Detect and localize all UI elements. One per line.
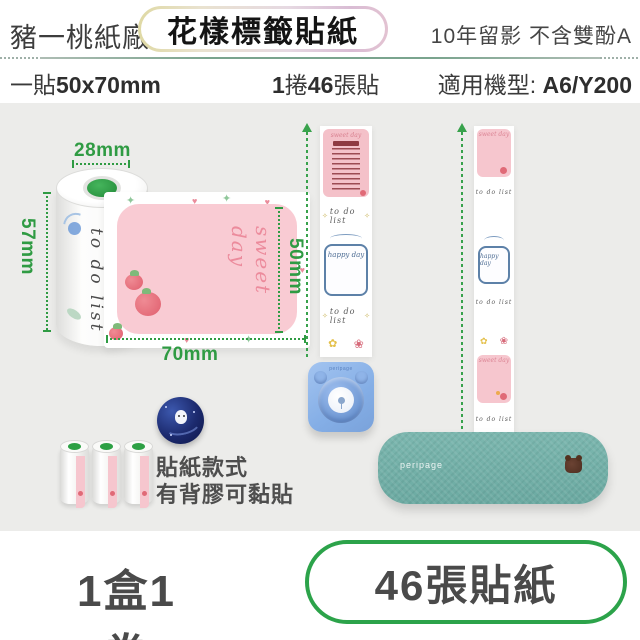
- a6-printer-teal: peripage: [378, 432, 608, 504]
- mini-printer-blue: peripage: [308, 362, 374, 432]
- strip-label-happy: happy day: [474, 234, 514, 290]
- mini-roll-pink-stripe: [76, 456, 85, 508]
- product-image: 豬一桃紙廠 花樣標籤貼紙 10年留影 不含雙酚A 一貼50x70mm 1捲46張…: [0, 0, 640, 640]
- divider-dots-right: [600, 57, 640, 59]
- spec-count-u1: 捲: [285, 72, 308, 98]
- divider-dots-left: [0, 57, 40, 59]
- printed-label-card: sweet day: [323, 129, 369, 197]
- note-line-2: 有背膠可黏貼: [156, 477, 294, 509]
- pack-quantity-text: 1盒1卷: [64, 555, 189, 640]
- strip-label-todo: to do list: [474, 290, 514, 314]
- sticker-label-text: sweet day: [227, 226, 275, 342]
- label-strip-middle: sweet day ✧ to do list ✧ happy day ✧ to …: [320, 126, 372, 357]
- sweet-label-card: sweet day: [477, 129, 511, 177]
- dimension-roll-height: 57mm: [16, 218, 38, 308]
- mini-roll-core: [100, 443, 113, 450]
- spec-size-prefix: 一貼: [10, 72, 56, 98]
- todo-label-text: to do list: [476, 189, 513, 196]
- mascot-logo-badge: [157, 397, 204, 444]
- dimension-label-height-line: [278, 207, 280, 333]
- brand-text: 豬一桃紙廠: [10, 16, 150, 55]
- bear-ear-decoration: [355, 371, 368, 384]
- happy-label-text: happy day: [328, 251, 364, 294]
- happy-label-frame: happy day: [324, 244, 368, 296]
- flower-decoration: ✿: [328, 337, 337, 350]
- balloon-icon: [338, 397, 345, 404]
- label-strip-right: sweet day to do list happy day to do lis…: [474, 126, 514, 433]
- printed-title-bar: [333, 141, 359, 146]
- flower-decoration: ✿: [480, 336, 488, 347]
- dimension-core-width-line: [72, 163, 130, 165]
- spec-size: 一貼50x70mm: [10, 66, 161, 100]
- mini-roll: [92, 440, 121, 504]
- dimension-roll-height-line: [46, 192, 48, 332]
- berry-dot-decoration: [78, 491, 83, 496]
- printer-brand-text: peripage: [400, 460, 443, 470]
- mini-roll-pink-stripe: [140, 456, 149, 508]
- star-dot: [170, 434, 172, 436]
- berry-dot-decoration: [500, 393, 507, 400]
- spec-row: 一貼50x70mm 1捲46張貼 適用機型: A6/Y200: [0, 66, 640, 98]
- sticker-count-text: 46張貼紙: [375, 552, 558, 613]
- certification-text: 10年留影 不含雙酚A: [431, 20, 632, 50]
- printer-ring: [318, 377, 364, 423]
- spec-model: 適用機型: A6/Y200: [438, 66, 632, 100]
- strip-label-flowers: ✿ ❀: [474, 330, 514, 352]
- printed-label-title: sweet day: [327, 132, 365, 139]
- strip-label-todo: ✧ to do list ✧: [320, 200, 372, 232]
- mini-roll-pink-stripe: [108, 456, 117, 508]
- berry-dot-decoration: [500, 167, 507, 174]
- spec-model-value: A6/Y200: [542, 72, 632, 98]
- bear-logo-icon: [565, 458, 582, 473]
- mini-roll: [124, 440, 153, 504]
- dimension-label-width-line: [106, 338, 306, 340]
- todo-label-text: to do list: [476, 299, 513, 306]
- spec-count-n1: 1: [272, 72, 285, 98]
- dimension-label-height: 50mm: [284, 238, 306, 308]
- mini-roll-body: [92, 447, 121, 504]
- header-divider: [0, 56, 640, 59]
- strip-label-sweet-printed: sweet day: [320, 126, 372, 200]
- berry-dot-decoration: [142, 491, 147, 496]
- sweet-label-text: sweet day: [477, 355, 511, 364]
- spec-count-u2: 張貼: [333, 72, 379, 98]
- printer-lens: [328, 387, 354, 413]
- strip-label-todo: ✧ to do list ✧: [320, 302, 372, 330]
- flower-decoration: ❀: [354, 337, 364, 351]
- happy-label-text: happy day: [480, 253, 508, 282]
- balloon-decoration: [68, 222, 81, 235]
- strip-label-sweet: sweet day: [474, 126, 514, 180]
- strip-label-flowers: ✿ ❀: [320, 330, 372, 357]
- strip-label-sweet: sweet day: [474, 352, 514, 406]
- leaf-decoration: [65, 306, 83, 322]
- roll-label-text: to do list: [86, 228, 106, 358]
- title-badge: 花樣標籤貼紙: [138, 6, 388, 52]
- arc-decoration: [484, 236, 504, 245]
- todo-label-text: to do list: [476, 416, 513, 423]
- mini-roll-core: [68, 443, 81, 450]
- mini-roll: [60, 440, 89, 504]
- star-dot: [165, 406, 167, 408]
- berry-dot-decoration: [496, 391, 500, 395]
- berry-dot-decoration: [360, 190, 366, 196]
- sticker-pink-area: sweet day: [117, 204, 297, 334]
- todo-label-text: to do list: [330, 207, 362, 225]
- mini-roll-core: [132, 443, 145, 450]
- sweet-label-text: sweet day: [477, 129, 511, 138]
- sparkle-decoration: ✧: [322, 312, 328, 320]
- title-badge-label: 花樣標籤貼紙: [141, 9, 385, 49]
- spec-count: 1捲46張貼: [272, 66, 379, 100]
- spec-model-label: 適用機型:: [438, 72, 536, 98]
- feed-direction-arrow-left: [306, 132, 308, 358]
- berry-dot-decoration: [110, 491, 115, 496]
- todo-label-text: to do list: [330, 307, 362, 325]
- star-dot: [193, 411, 195, 413]
- feed-direction-arrow-right: [461, 132, 463, 432]
- arc-decoration: [330, 234, 362, 243]
- mascot-character: [175, 410, 187, 424]
- strip-label-todo: to do list: [474, 406, 514, 433]
- strip-blank-area: [474, 314, 514, 330]
- strawberry-decoration: [125, 274, 143, 290]
- strawberry-decoration: [135, 292, 161, 316]
- divider-line: [40, 57, 600, 59]
- happy-label-frame: happy day: [478, 246, 510, 284]
- mini-roll-body: [60, 447, 89, 504]
- sticker-count-pill: 46張貼紙: [305, 540, 627, 624]
- strip-label-todo: to do list: [474, 180, 514, 204]
- printed-text-lines: [332, 148, 360, 190]
- sweet-label-card: sweet day: [477, 355, 511, 403]
- strip-blank-area: [474, 204, 514, 234]
- spec-size-value: 50x70mm: [56, 72, 161, 98]
- flower-decoration: ❀: [500, 336, 508, 347]
- sparkle-decoration: ✧: [364, 212, 370, 220]
- sparkle-decoration: ✧: [364, 312, 370, 320]
- sparkle-decoration: ✧: [322, 212, 328, 220]
- dimension-label-width: 70mm: [150, 344, 230, 366]
- strip-label-happy: happy day: [320, 232, 372, 302]
- mini-roll-body: [124, 447, 153, 504]
- spec-count-n2: 46: [308, 72, 334, 98]
- dimension-core-width: 28mm: [74, 140, 130, 162]
